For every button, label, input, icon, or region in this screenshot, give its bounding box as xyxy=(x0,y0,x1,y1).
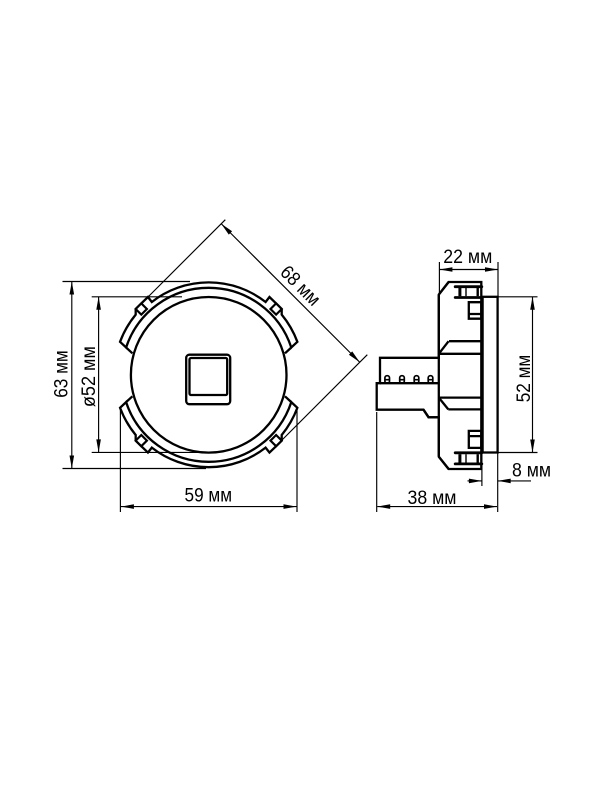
svg-text:59 мм: 59 мм xyxy=(185,485,233,507)
svg-text:38 мм: 38 мм xyxy=(408,487,457,509)
svg-text:63 мм: 63 мм xyxy=(50,350,72,398)
svg-text:8 мм: 8 мм xyxy=(512,459,551,481)
svg-text:22 мм: 22 мм xyxy=(443,246,492,268)
svg-text:ø52 мм: ø52 мм xyxy=(78,346,100,407)
svg-text:52 мм: 52 мм xyxy=(513,355,535,403)
